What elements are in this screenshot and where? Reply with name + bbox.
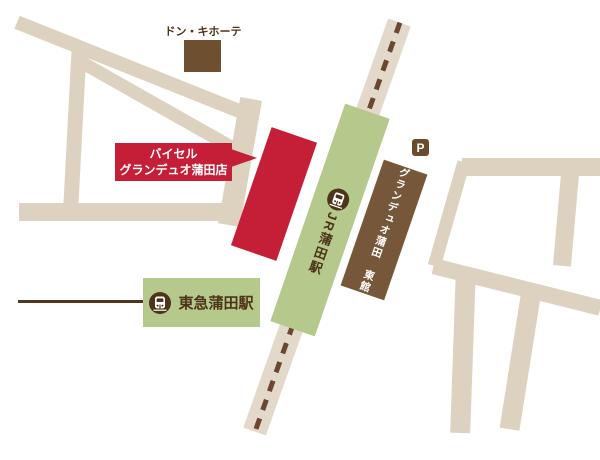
building-don-quijote [184,40,221,72]
train-icon [149,292,171,314]
road-south-vertical-1 [450,271,476,434]
tokyu-station-box: 東急蒲田駅 [143,278,260,327]
station-area-map: ドン・キホーテ JR蒲田駅 グランデュオ蒲田 東館 P バイセル グランデュオ蒲… [0,0,600,460]
parking-label: P [416,141,424,155]
road-east-diagonal-upper [428,160,470,267]
callout-line1: バイセル [149,146,197,162]
parking-icon: P [412,139,429,156]
road-south-vertical-2 [500,295,541,430]
road-bottom-horizontal [19,203,233,221]
callout-bubble: バイセル グランデュオ蒲田店 [115,143,232,181]
tokyu-line [18,300,144,303]
tokyu-station-label: 東急蒲田駅 [178,292,253,313]
don-quijote-label: ドン・キホーテ [165,23,242,39]
callout-line2: グランデュオ蒲田店 [119,162,227,178]
road-east-horizontal [462,158,600,176]
callout-pointer [231,149,257,167]
road-east-block-vertical [553,173,579,266]
